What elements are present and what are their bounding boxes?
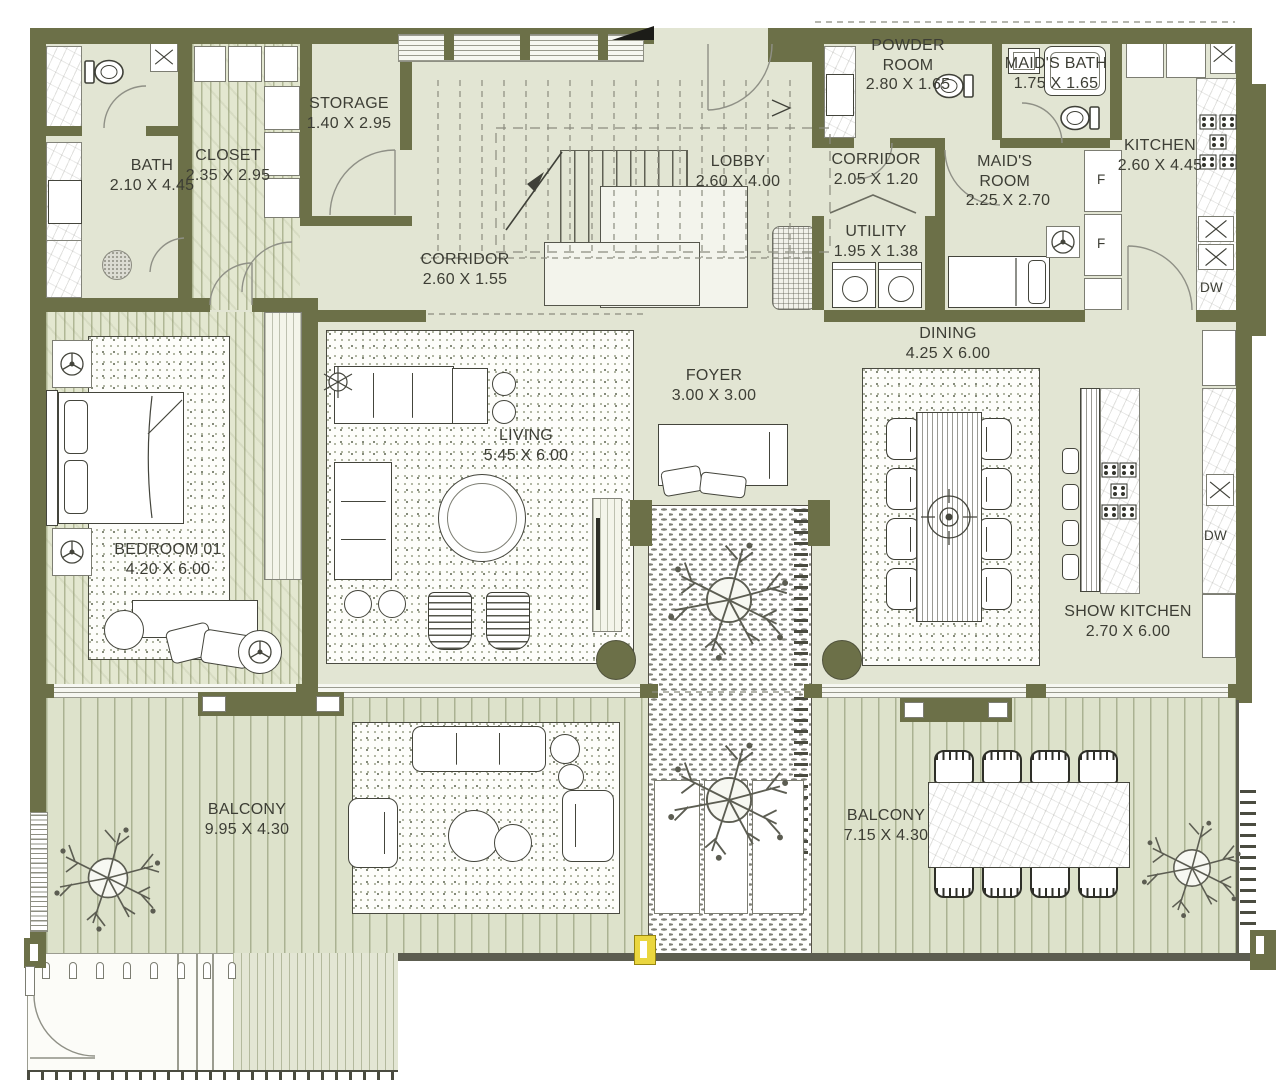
- balcony-right-edge: [1236, 700, 1239, 953]
- balcony-edge-line: [398, 953, 1252, 961]
- wall-powder-maidsbath: [992, 44, 1002, 140]
- room-label-show-kitchen: SHOW KITCHEN 2.70 X 6.00: [1064, 602, 1191, 641]
- room-label-storage: STORAGE 1.40 X 2.95: [307, 94, 392, 133]
- maids-bed-pillow: [1028, 260, 1046, 304]
- room-dims: 2.10 X 4.45: [110, 176, 195, 196]
- wall-powder-bottom: [824, 138, 854, 148]
- room-label-powder-room: POWDER ROOM 2.80 X 1.65: [860, 36, 956, 95]
- outdoor-dining-chair: [982, 864, 1022, 898]
- bedroom-fan-chair: [238, 630, 282, 674]
- room-label-living: LIVING 5.45 X 6.00: [484, 426, 569, 465]
- sofa-top: [334, 366, 454, 424]
- bed-pillow: [64, 400, 88, 454]
- side-table-round: [492, 372, 516, 396]
- outdoor-dining-chair: [934, 864, 974, 898]
- kitchen-cabinet: [1166, 38, 1206, 78]
- stair-landing-lower: [544, 242, 700, 306]
- maids-room-unit: [1046, 226, 1080, 258]
- living-pouf: [378, 590, 406, 618]
- room-dims: 1.75 X 1.65: [1005, 74, 1107, 94]
- room-label-bath: BATH 2.10 X 4.45: [110, 156, 195, 195]
- balcony-side-louver: [30, 812, 48, 932]
- room-label-utility: UTILITY 1.95 X 1.38: [834, 222, 919, 261]
- window-band: [318, 684, 640, 698]
- dining-chair: [886, 568, 920, 610]
- sliding-door-cap: [904, 702, 924, 718]
- bedroom-pouf: [104, 610, 144, 650]
- courtyard-planter: [630, 500, 652, 546]
- terrace-railing: [27, 1070, 398, 1080]
- outdoor-coffee-table: [494, 824, 532, 862]
- room-name: STORAGE: [307, 94, 392, 114]
- wall-bedroom-top: [30, 298, 210, 312]
- wall-maidsroom-top: [1000, 138, 1110, 148]
- room-dims: 3.00 X 3.00: [672, 386, 757, 406]
- kitchen-cabinet: [1126, 38, 1164, 78]
- railing-post: [203, 962, 211, 979]
- courtyard-planter: [808, 500, 830, 546]
- railing-post: [177, 962, 185, 979]
- room-name: BALCONY: [205, 800, 290, 820]
- bath-vanity-sink: [48, 180, 82, 224]
- sofa-side-table: [452, 368, 488, 424]
- railing-post: [96, 962, 104, 979]
- window-mullion: [640, 684, 658, 698]
- show-kitchen-cabinet: [1202, 594, 1236, 658]
- tv-icon: [596, 518, 600, 610]
- island-stool: [1062, 484, 1079, 510]
- washer-door: [842, 276, 868, 302]
- room-label-maids-bath: MAID'S BATH 1.75 X 1.65: [1005, 54, 1107, 93]
- room-dims: 2.25 X 2.70: [966, 191, 1051, 211]
- wall-bedroom-living: [302, 298, 318, 688]
- floor-plan: BATH 2.10 X 4.45 CLOSET 2.35 X 2.95 STOR…: [0, 0, 1280, 1080]
- dining-chair: [978, 568, 1012, 610]
- window-mullion: [444, 34, 454, 60]
- wall-corridor-living: [318, 310, 426, 322]
- room-label-kitchen: KITCHEN 2.60 X 4.45: [1118, 136, 1203, 175]
- closet-cabinet: [194, 46, 226, 82]
- outdoor-armchair: [562, 790, 614, 862]
- wall-toilet-nook: [146, 126, 178, 136]
- room-dims: 1.40 X 2.95: [307, 114, 392, 134]
- wall-right: [1236, 28, 1252, 703]
- room-dims: 2.80 X 1.65: [860, 75, 956, 95]
- sliding-door-cap: [988, 702, 1008, 718]
- room-name: POWDER ROOM: [860, 36, 956, 75]
- balcony-end-post-notch: [1256, 936, 1264, 954]
- dining-chair: [978, 518, 1012, 560]
- dryer-door: [888, 276, 914, 302]
- wall-corridor-maidsroom: [935, 138, 945, 310]
- room-label-dining: DINING 4.25 X 6.00: [906, 324, 991, 363]
- outdoor-dining-chair: [1078, 750, 1118, 784]
- room-name: FOYER: [672, 366, 757, 386]
- room-label-balcony-left: BALCONY 9.95 X 4.30: [205, 800, 290, 839]
- room-dims: 2.60 X 4.00: [696, 172, 781, 192]
- room-label-closet: CLOSET 2.35 X 2.95: [186, 146, 271, 185]
- fridge-tag: F: [1097, 172, 1106, 187]
- wall-storage-bottom: [300, 216, 412, 226]
- dishwasher-tag: DW: [1200, 280, 1223, 295]
- outdoor-dining-chair: [982, 750, 1022, 784]
- dining-chair: [978, 468, 1012, 510]
- outdoor-dining-chair: [1078, 864, 1118, 898]
- show-kitchen-sink: [1206, 474, 1234, 506]
- round-planter: [596, 640, 636, 680]
- room-dims: 5.45 X 6.00: [484, 446, 569, 466]
- kitchen-cabinet: [1084, 278, 1122, 310]
- room-dims: 7.15 X 4.30: [844, 826, 929, 846]
- powder-sink: [826, 74, 854, 116]
- entry-opening: [654, 28, 770, 44]
- shower-drain-icon: [102, 250, 132, 280]
- wall-powder-bottom: [890, 138, 935, 148]
- railing-post: [228, 962, 236, 979]
- wall-toilet-nook: [30, 126, 82, 136]
- window-mullion: [1228, 684, 1236, 698]
- dryer: [878, 262, 922, 308]
- room-dims: 9.95 X 4.30: [205, 820, 290, 840]
- room-dims: 1.95 X 1.38: [834, 242, 919, 262]
- wall-utility-right: [925, 216, 935, 310]
- sofa-left: [334, 462, 392, 580]
- window-mullion: [804, 684, 822, 698]
- closet-cabinet: [228, 46, 262, 82]
- side-table-round: [492, 400, 516, 424]
- outdoor-dining-chair: [1030, 750, 1070, 784]
- room-dims: 2.35 X 2.95: [186, 166, 271, 186]
- outdoor-armchair: [348, 798, 398, 868]
- closet-shelf: [264, 86, 300, 130]
- island-counter-edge: [1080, 388, 1100, 592]
- window-mullion: [46, 684, 54, 698]
- terrace-post-notch: [30, 944, 38, 961]
- coffee-table-top: [447, 483, 517, 553]
- island-stool: [1062, 448, 1079, 474]
- room-name: KITCHEN: [1118, 136, 1203, 156]
- gate-leaf: [25, 966, 35, 996]
- railing-post: [123, 962, 131, 979]
- room-name: BALCONY: [844, 806, 929, 826]
- outdoor-dining-chair: [934, 750, 974, 784]
- room-dims: 2.70 X 6.00: [1064, 622, 1191, 642]
- lower-terrace-deck: [233, 953, 398, 1070]
- highlight-marker-notch: [640, 941, 647, 958]
- corridor-mat: [772, 226, 816, 310]
- courtyard-planter-bed: [752, 780, 804, 914]
- bed-pillow: [64, 460, 88, 514]
- window-band: [1046, 684, 1228, 698]
- room-label-bedroom-01: BEDROOM 01 4.20 X 6.00: [114, 540, 221, 579]
- island-stool: [1062, 554, 1079, 580]
- room-name: LOBBY: [696, 152, 781, 172]
- room-name: CORRIDOR: [831, 150, 920, 170]
- window-mullion: [598, 34, 608, 60]
- window-band: [822, 684, 1026, 698]
- wall-right-jog: [1236, 322, 1266, 336]
- room-name: BATH: [110, 156, 195, 176]
- wardrobe: [264, 312, 302, 580]
- show-kitchen-cabinet: [1202, 330, 1236, 386]
- room-name: UTILITY: [834, 222, 919, 242]
- outdoor-side-table: [550, 734, 580, 764]
- sliding-door-cap: [316, 696, 340, 712]
- bath-shaft: [150, 42, 178, 72]
- balcony-right-louver: [1240, 790, 1256, 925]
- room-label-balcony-right: BALCONY 7.15 X 4.30: [844, 806, 929, 845]
- kitchen-counter: [1196, 78, 1238, 312]
- sliding-door-cap: [202, 696, 226, 712]
- island-counter: [1100, 388, 1140, 594]
- railing-post: [150, 962, 158, 979]
- dining-table: [916, 412, 982, 622]
- shower-ledge: [46, 240, 82, 298]
- wall-dining-top: [1196, 310, 1236, 322]
- kitchen-sink: [1198, 216, 1234, 242]
- courtyard-planter-bed: [654, 780, 700, 914]
- room-dims: 2.60 X 1.55: [420, 270, 509, 290]
- living-pouf: [344, 590, 372, 618]
- accent-chair: [486, 592, 530, 650]
- outdoor-sofa: [412, 726, 546, 772]
- courtyard-planter-bed: [704, 780, 748, 914]
- terrace-divider: [196, 953, 198, 1070]
- kitchen-sink: [1198, 244, 1234, 270]
- room-dims: 2.05 X 1.20: [831, 170, 920, 190]
- room-label-corridor-top: CORRIDOR 2.05 X 1.20: [831, 150, 920, 189]
- room-label-maids-room: MAID'S ROOM 2.25 X 2.70: [966, 152, 1051, 211]
- room-label-lobby: LOBBY 2.60 X 4.00: [696, 152, 781, 191]
- coffee-table: [438, 474, 526, 562]
- bath-counter: [46, 46, 82, 128]
- outdoor-side-table: [558, 764, 584, 790]
- room-name: LIVING: [484, 426, 569, 446]
- room-name: BEDROOM 01: [114, 540, 221, 560]
- wall-lobby-powder: [812, 44, 824, 148]
- wall-right-bump: [1252, 84, 1266, 336]
- dishwasher-tag: DW: [1204, 528, 1227, 543]
- terrace-divider: [212, 953, 214, 1070]
- dryer-panel: [879, 269, 921, 270]
- dining-chair: [886, 418, 920, 460]
- fridge-tag: F: [1097, 236, 1106, 251]
- room-dims: 2.60 X 4.45: [1118, 156, 1203, 176]
- room-name: CLOSET: [186, 146, 271, 166]
- room-label-corridor-main: CORRIDOR 2.60 X 1.55: [420, 250, 509, 289]
- bed-headboard: [46, 390, 58, 526]
- accent-chair: [428, 592, 472, 650]
- outdoor-dining-table: [928, 782, 1130, 868]
- window-mullion: [1026, 684, 1046, 698]
- room-label-foyer: FOYER 3.00 X 3.00: [672, 366, 757, 405]
- room-name: MAID'S BATH: [1005, 54, 1107, 74]
- dining-chair: [886, 468, 920, 510]
- wall-utility-left: [812, 216, 824, 310]
- nightstand: [52, 528, 92, 576]
- dining-chair: [886, 518, 920, 560]
- courtyard-louver-screen: [794, 508, 808, 666]
- outdoor-dining-chair: [1030, 864, 1070, 898]
- room-name: DINING: [906, 324, 991, 344]
- washer: [832, 262, 876, 308]
- wall-entry-corner: [768, 28, 812, 62]
- outdoor-coffee-table: [448, 810, 500, 862]
- island-stool: [1062, 520, 1079, 546]
- round-planter: [822, 640, 862, 680]
- closet-cabinet: [264, 46, 298, 82]
- room-name: CORRIDOR: [420, 250, 509, 270]
- railing-post: [69, 962, 77, 979]
- room-dims: 4.25 X 6.00: [906, 344, 991, 364]
- room-dims: 4.20 X 6.00: [114, 560, 221, 580]
- washer-panel: [833, 269, 875, 270]
- dining-chair: [978, 418, 1012, 460]
- wall-maidsbath-kitchen: [1110, 44, 1122, 140]
- nightstand: [52, 340, 92, 388]
- window-mullion: [520, 34, 530, 60]
- highlight-marker: [634, 935, 656, 965]
- room-name: MAID'S ROOM: [966, 152, 1044, 191]
- room-name: SHOW KITCHEN: [1064, 602, 1191, 622]
- wall-left: [30, 28, 46, 940]
- wall-dining-top: [824, 310, 1085, 322]
